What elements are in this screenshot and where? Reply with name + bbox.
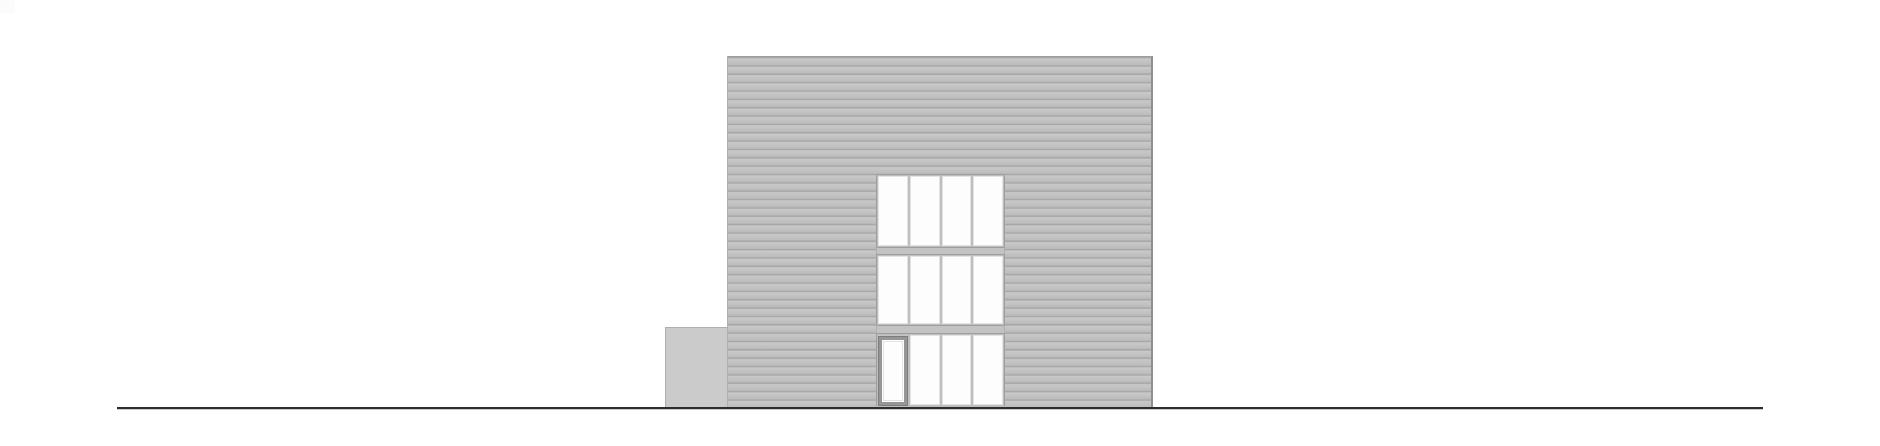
spandrel <box>876 326 1005 333</box>
window-stack <box>876 174 1005 406</box>
annex-volume <box>665 327 727 407</box>
window-pane <box>878 256 908 324</box>
entry-door <box>879 337 907 405</box>
window-pane <box>973 335 1003 405</box>
corner-artifact <box>0 0 15 13</box>
window-band-first-floor <box>876 254 1005 326</box>
window-band-second-floor <box>876 174 1005 248</box>
window-pane <box>910 335 940 405</box>
door-cell <box>878 335 908 405</box>
window-pane <box>973 176 1003 246</box>
door-glass <box>883 341 903 401</box>
window-pane <box>973 256 1003 324</box>
window-pane <box>910 256 940 324</box>
window-pane <box>910 176 940 246</box>
ground-line <box>117 407 1763 409</box>
window-pane <box>942 256 972 324</box>
window-band-ground-floor <box>876 333 1005 406</box>
window-pane <box>878 176 908 246</box>
window-pane <box>942 176 972 246</box>
window-pane <box>942 335 972 405</box>
elevation-drawing <box>0 0 1880 446</box>
